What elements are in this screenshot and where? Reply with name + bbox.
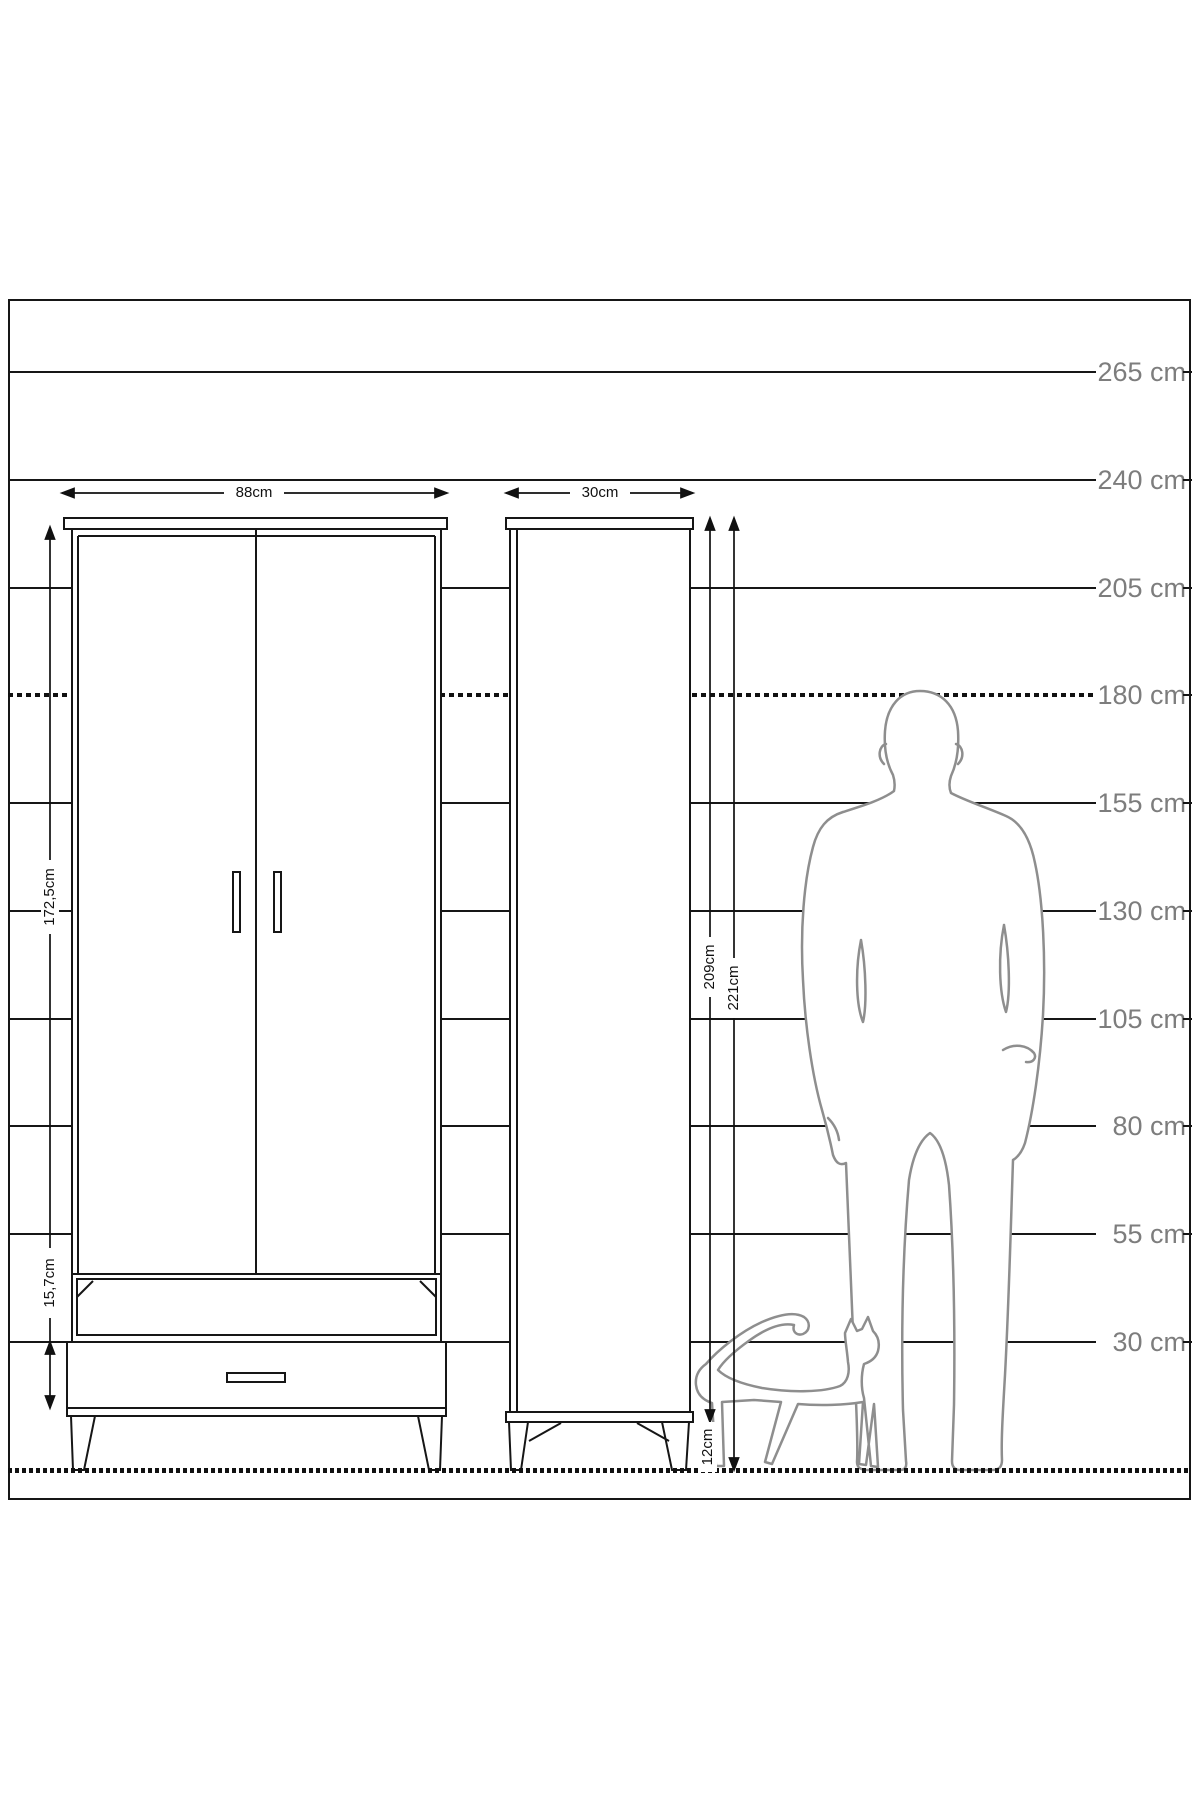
man-body-outline [802, 691, 1044, 1470]
front-leg-left [71, 1416, 95, 1470]
front-door-height-label: 172,5cm [41, 860, 59, 934]
wardrobe-side-view [506, 518, 693, 1470]
side-leg-back [662, 1422, 689, 1470]
front-drawer-handle [227, 1373, 285, 1382]
man-silhouette [802, 691, 1044, 1470]
front-top-board [64, 518, 447, 529]
side-leg-front [509, 1422, 528, 1470]
arrow-up-icon [706, 518, 715, 530]
elevation-drawing [0, 0, 1200, 1800]
front-bottom-board [67, 1408, 446, 1416]
arrow-down-icon [46, 1396, 55, 1408]
arrow-right-icon [435, 489, 447, 498]
front-niche [77, 1279, 436, 1335]
arrow-left-icon [506, 489, 518, 498]
cat-outline [696, 1314, 879, 1467]
side-carcass [510, 529, 690, 1412]
wardrobe-front-view [64, 518, 447, 1470]
side-leg-height-label: 12cm [699, 1422, 717, 1472]
arrow-up-icon [730, 518, 739, 530]
arrow-left-icon [62, 489, 74, 498]
side-cabinet-height-label: 209cm [701, 937, 719, 997]
cat-silhouette [696, 1314, 879, 1467]
front-leg-right [418, 1416, 442, 1470]
front-door-handle-left [233, 872, 240, 932]
side-top-board [506, 518, 693, 529]
front-door-handle-right [274, 872, 281, 932]
side-total-height-label: 221cm [725, 958, 743, 1018]
arrow-up-icon [46, 1342, 55, 1354]
side-depth-label: 30cm [570, 484, 630, 502]
diagram-canvas: 265 cm 240 cm 205 cm 180 cm 155 cm 130 c… [0, 0, 1200, 1800]
front-width-label: 88cm [224, 484, 284, 502]
front-drawer-height-label: 15,7cm [41, 1248, 59, 1318]
side-leg-strut-front [529, 1423, 561, 1441]
floor-line [8, 1468, 1191, 1473]
arrow-up-icon [46, 527, 55, 539]
arrow-right-icon [681, 489, 693, 498]
side-bottom-board [506, 1412, 693, 1422]
